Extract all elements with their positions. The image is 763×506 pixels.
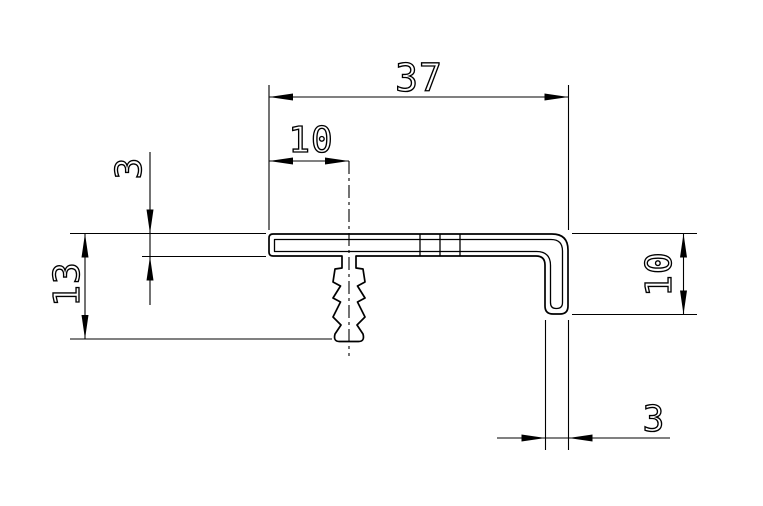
profile-outline: [269, 234, 568, 342]
arrow-flange-bottom: [147, 257, 154, 281]
dimension-label-overall-depth: 13: [47, 261, 88, 306]
profile-section-drawing: 37 10 3 13 10 3: [0, 0, 763, 506]
arrow-width-right: [545, 94, 569, 101]
dimension-labels: 37 10 3 13 10 3: [47, 56, 680, 440]
extension-lines: [70, 85, 697, 450]
arrow-legthk-left: [522, 435, 546, 442]
dimension-label-leg-height: 10: [639, 251, 680, 296]
arrow-width-left: [269, 94, 293, 101]
arrow-legthk-right: [569, 435, 593, 442]
arrow-leg-top: [680, 234, 687, 258]
dimension-arrows: [82, 94, 688, 442]
technical-drawing-canvas: 37 10 3 13 10 3: [0, 0, 763, 506]
flange-segment-ticks: [420, 234, 460, 256]
dimension-lines: [85, 97, 684, 438]
dimension-label-flange-thickness: 3: [109, 157, 150, 180]
dimension-label-fastener-offset: 10: [288, 120, 333, 161]
dimension-label-overall-width: 37: [395, 56, 443, 100]
dimension-label-leg-thickness: 3: [643, 399, 666, 440]
arrow-depth-top: [82, 234, 89, 258]
arrow-flange-top: [147, 210, 154, 234]
arrow-depth-bottom: [82, 315, 89, 339]
profile-inner-contour: [275, 240, 563, 309]
arrow-leg-bottom: [680, 291, 687, 315]
